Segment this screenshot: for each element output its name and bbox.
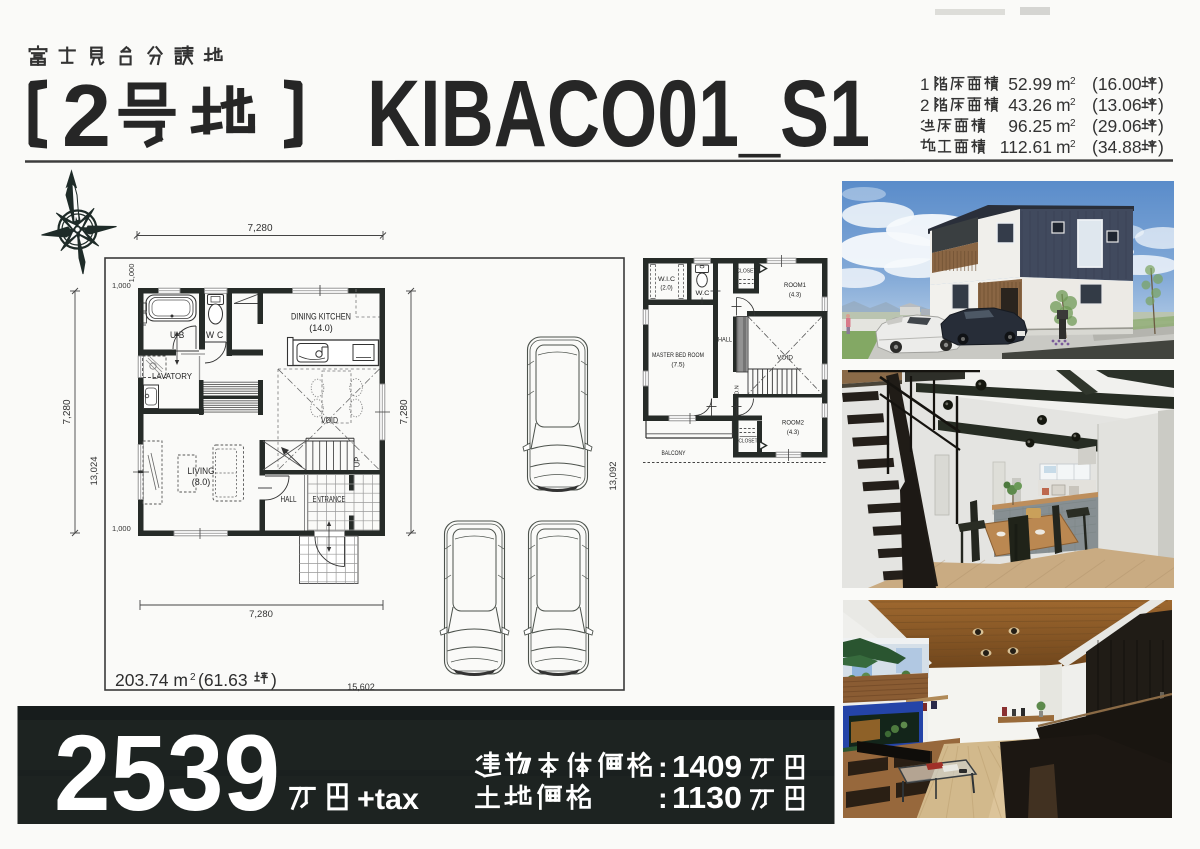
svg-text:): ): [1158, 74, 1164, 94]
svg-text:(13.06: (13.06: [1092, 95, 1142, 115]
svg-text:96.25: 96.25: [1008, 116, 1052, 136]
svg-text:LIVING: LIVING: [188, 466, 215, 476]
svg-text:7,280: 7,280: [247, 223, 272, 234]
svg-text:2: 2: [1070, 139, 1076, 150]
svg-text:(29.06: (29.06: [1092, 116, 1142, 136]
svg-text:HALL: HALL: [281, 495, 297, 504]
svg-text:7,280: 7,280: [249, 609, 273, 620]
svg-text:13,092: 13,092: [608, 461, 619, 490]
svg-text:(2.0): (2.0): [660, 286, 672, 292]
svg-text:2: 2: [190, 672, 196, 683]
svg-text:MASTER BED ROOM: MASTER BED ROOM: [652, 352, 704, 359]
svg-text:VOID: VOID: [777, 355, 793, 362]
svg-text:43.26: 43.26: [1008, 95, 1052, 115]
svg-text:): ): [1158, 116, 1164, 136]
svg-text:(16.00: (16.00: [1092, 74, 1142, 94]
svg-text:2539: 2539: [54, 712, 280, 833]
svg-text:m: m: [1056, 74, 1071, 94]
svg-text:13,024: 13,024: [89, 456, 100, 485]
svg-text:203.74 m: 203.74 m: [115, 670, 188, 690]
svg-text:(14.0): (14.0): [309, 323, 333, 333]
svg-text:2: 2: [62, 66, 111, 165]
svg-text:WC: WC: [206, 330, 226, 340]
svg-text:D.N: D.N: [735, 385, 741, 395]
svg-text:1130: 1130: [672, 780, 742, 815]
svg-text:1: 1: [920, 75, 929, 94]
svg-text:): ): [1158, 137, 1164, 157]
svg-text:KIBACO01_S1: KIBACO01_S1: [367, 61, 870, 167]
svg-text:2: 2: [1070, 76, 1076, 87]
svg-text:7,280: 7,280: [399, 399, 410, 424]
svg-text:CLOSET: CLOSET: [739, 439, 758, 445]
svg-text:112.61: 112.61: [1000, 137, 1052, 157]
svg-text:(4.3): (4.3): [789, 293, 801, 299]
svg-text:W.C: W.C: [696, 291, 711, 297]
svg-text:HALL: HALL: [718, 338, 733, 344]
svg-text:m: m: [1056, 95, 1071, 115]
svg-text:): ): [1158, 95, 1164, 115]
svg-text:): ): [271, 670, 277, 690]
svg-text:15,602: 15,602: [347, 682, 375, 692]
svg-text:52.99: 52.99: [1008, 74, 1052, 94]
svg-text:2: 2: [920, 96, 929, 115]
svg-text::: :: [658, 783, 668, 815]
svg-text:(8.0): (8.0): [192, 477, 211, 487]
svg-text:2: 2: [1070, 118, 1076, 129]
svg-text:2: 2: [1070, 97, 1076, 108]
svg-text:1,000: 1,000: [112, 524, 131, 533]
svg-text::: :: [658, 752, 668, 784]
svg-text:(4.3): (4.3): [787, 430, 799, 436]
svg-text:W.I.C: W.I.C: [658, 277, 676, 283]
svg-text:ROOM2: ROOM2: [782, 421, 805, 427]
svg-text:UP: UP: [353, 457, 362, 467]
svg-text:7,280: 7,280: [62, 399, 73, 424]
svg-text:VOID: VOID: [321, 416, 338, 425]
svg-text:DINING KITCHEN: DINING KITCHEN: [291, 312, 351, 322]
svg-text:BALCONY: BALCONY: [662, 451, 686, 457]
svg-text:(61.63: (61.63: [198, 670, 248, 690]
svg-text:CLOSET: CLOSET: [737, 269, 757, 275]
svg-text:ROOM1: ROOM1: [784, 283, 807, 289]
svg-text:1409: 1409: [672, 749, 742, 784]
svg-text:m: m: [1056, 137, 1071, 157]
svg-text:(34.88: (34.88: [1092, 137, 1142, 157]
svg-text:m: m: [1056, 116, 1071, 136]
svg-text:1,000: 1,000: [127, 264, 136, 283]
svg-text:+tax: +tax: [357, 783, 419, 816]
svg-text:(7.5): (7.5): [671, 362, 684, 369]
